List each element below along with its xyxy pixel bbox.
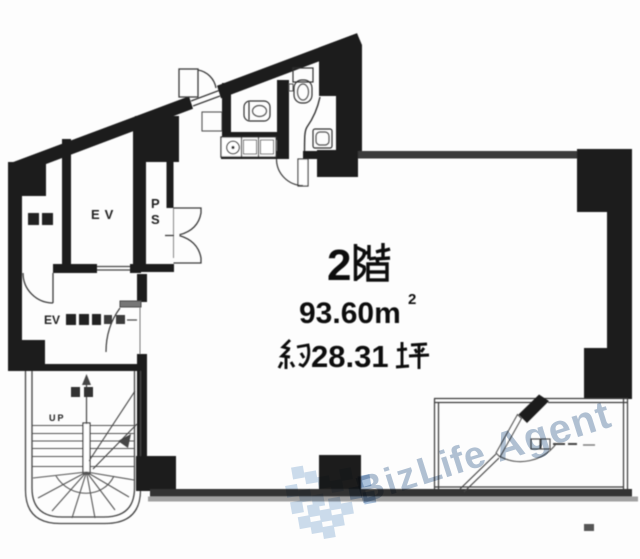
svg-text:2: 2 bbox=[327, 241, 351, 290]
svg-text:93.60m: 93.60m bbox=[299, 297, 401, 330]
svg-text:EV: EV bbox=[44, 313, 60, 327]
svg-text:28.31: 28.31 bbox=[311, 339, 389, 374]
svg-text:P: P bbox=[151, 196, 160, 211]
svg-text:2: 2 bbox=[408, 291, 416, 308]
svg-text:EV: EV bbox=[91, 207, 118, 222]
svg-text:S: S bbox=[151, 212, 160, 227]
svg-text:UP: UP bbox=[49, 413, 66, 423]
